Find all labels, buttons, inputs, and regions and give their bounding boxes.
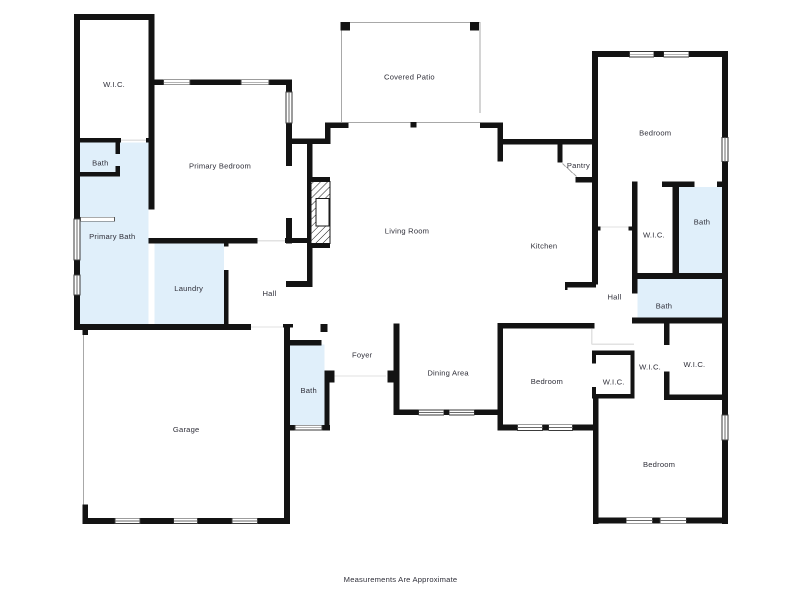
svg-text:Bath: Bath <box>92 158 108 167</box>
svg-text:Foyer: Foyer <box>352 350 373 359</box>
svg-text:Bath: Bath <box>656 302 672 311</box>
svg-text:Measurements Are Approximate: Measurements Are Approximate <box>344 575 458 584</box>
svg-text:Bath: Bath <box>694 218 710 227</box>
svg-text:W.I.C.: W.I.C. <box>639 363 661 372</box>
svg-text:Kitchen: Kitchen <box>531 242 558 251</box>
svg-text:Dining Area: Dining Area <box>427 368 469 377</box>
svg-text:Bedroom: Bedroom <box>639 129 671 138</box>
svg-text:W.I.C.: W.I.C. <box>603 377 625 386</box>
svg-text:W.I.C.: W.I.C. <box>683 360 705 369</box>
svg-text:Garage: Garage <box>173 425 200 434</box>
svg-text:Covered Patio: Covered Patio <box>384 72 435 81</box>
svg-text:Bedroom: Bedroom <box>531 377 563 386</box>
svg-text:W.I.C.: W.I.C. <box>103 80 125 89</box>
svg-text:Laundry: Laundry <box>174 284 203 293</box>
svg-text:Primary Bath: Primary Bath <box>89 232 135 241</box>
svg-text:Primary Bedroom: Primary Bedroom <box>189 162 251 171</box>
svg-text:Hall: Hall <box>262 289 276 298</box>
svg-text:Bath: Bath <box>300 386 316 395</box>
svg-text:Pantry: Pantry <box>567 161 590 170</box>
svg-text:Living Room: Living Room <box>385 227 429 236</box>
svg-text:Bedroom: Bedroom <box>643 460 675 469</box>
svg-text:W.I.C.: W.I.C. <box>643 230 665 239</box>
svg-text:Hall: Hall <box>607 293 621 302</box>
